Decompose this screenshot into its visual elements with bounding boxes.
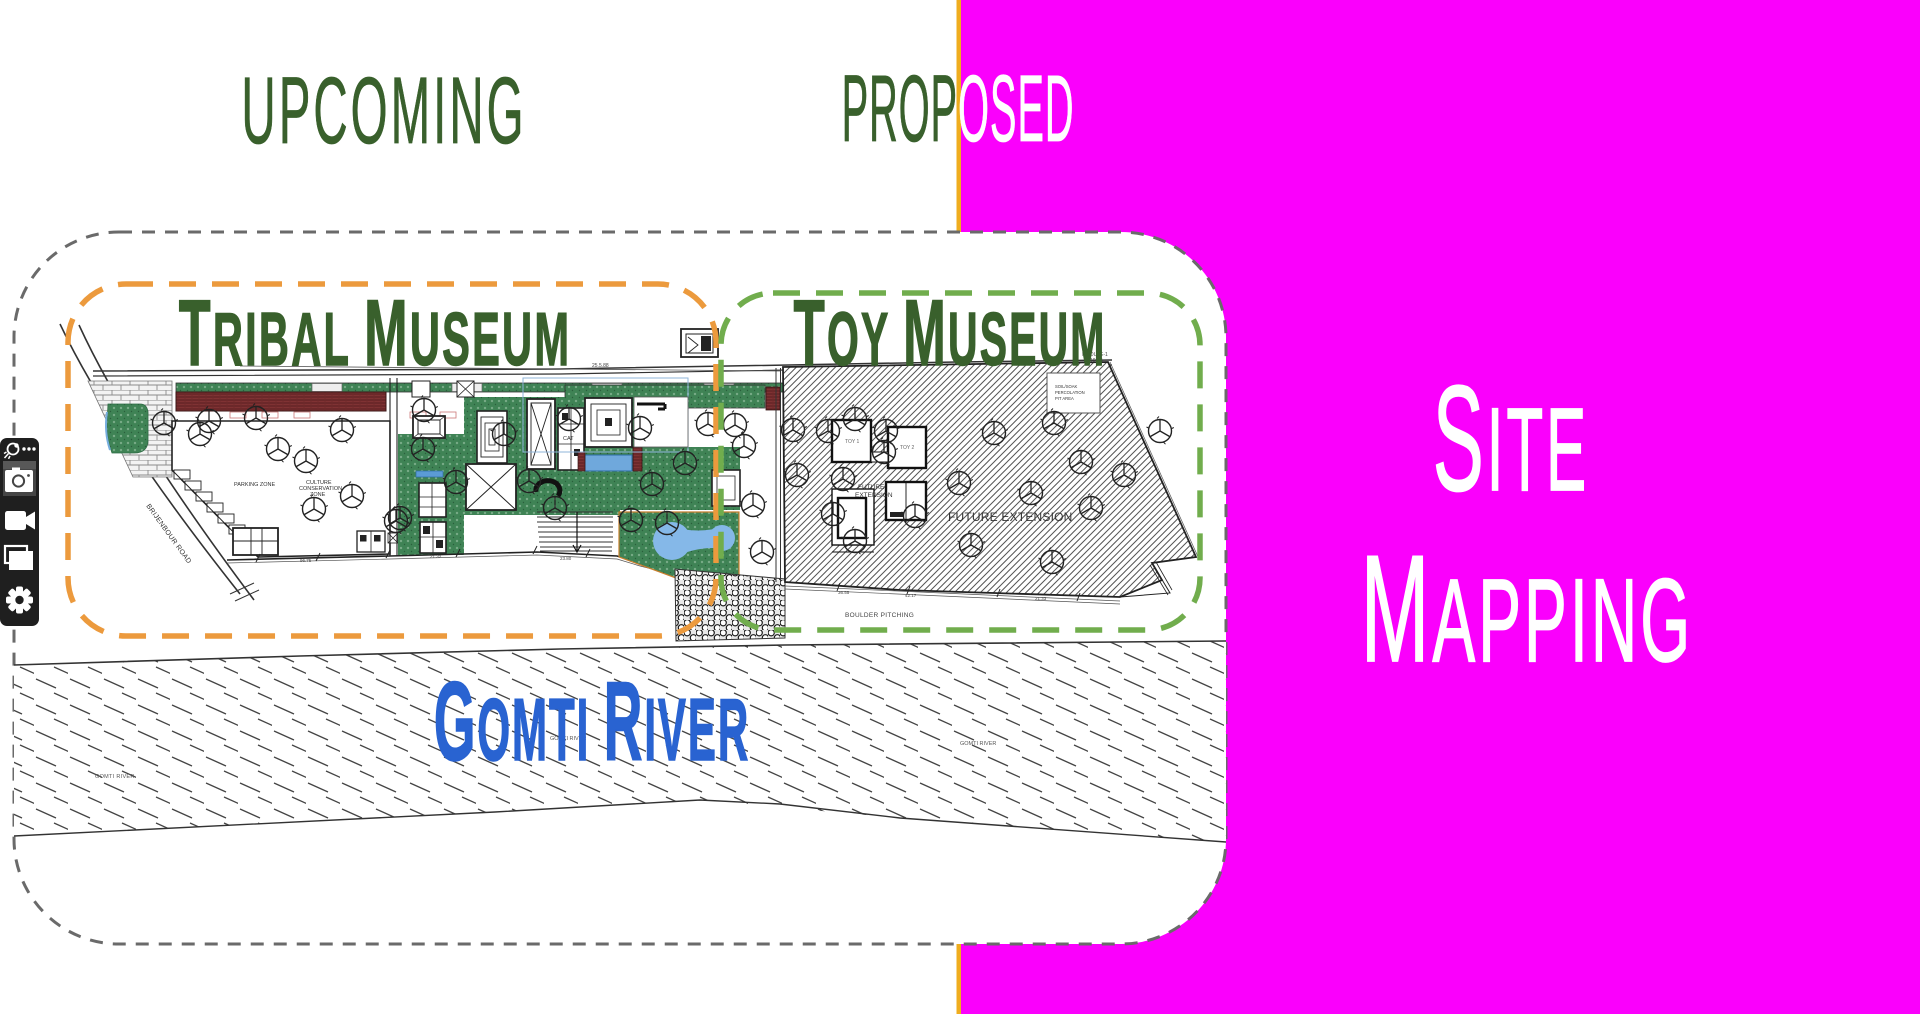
svg-text:BOULDER PITCHING: BOULDER PITCHING [845,612,914,619]
svg-text:UPCOMING: UPCOMING [241,57,526,163]
svg-text:CAT: CAT [563,436,574,442]
svg-text:PIT AREA: PIT AREA [1055,396,1074,401]
svg-text:EXTENSION: EXTENSION [855,492,893,499]
svg-text:TOY 2: TOY 2 [900,445,914,451]
svg-text:GOMTI RIVER: GOMTI RIVER [95,774,135,780]
svg-text:PARKING ZONE: PARKING ZONE [234,482,275,488]
svg-text:36.55: 36.55 [838,590,850,595]
svg-text:96.75: 96.75 [300,558,312,563]
svg-text:23.80: 23.80 [560,556,572,561]
svg-text:TOY MUSEUM: TOY MUSEUM [794,281,1107,387]
svg-text:GOMTI RIVER: GOMTI RIVER [960,741,996,747]
svg-text:SOIL/SOAK: SOIL/SOAK [1055,384,1078,389]
svg-text:PERCOLATION: PERCOLATION [1055,390,1085,395]
svg-text:TOY 1: TOY 1 [845,439,859,445]
svg-text:25.5.88: 25.5.88 [592,363,609,369]
svg-text:21.32: 21.32 [430,554,442,559]
svg-text:FUTURE EXTENSION: FUTURE EXTENSION [948,510,1073,524]
svg-text:TRIBAL MUSEUM: TRIBAL MUSEUM [179,281,571,386]
svg-text:FUTURE: FUTURE [858,484,885,491]
